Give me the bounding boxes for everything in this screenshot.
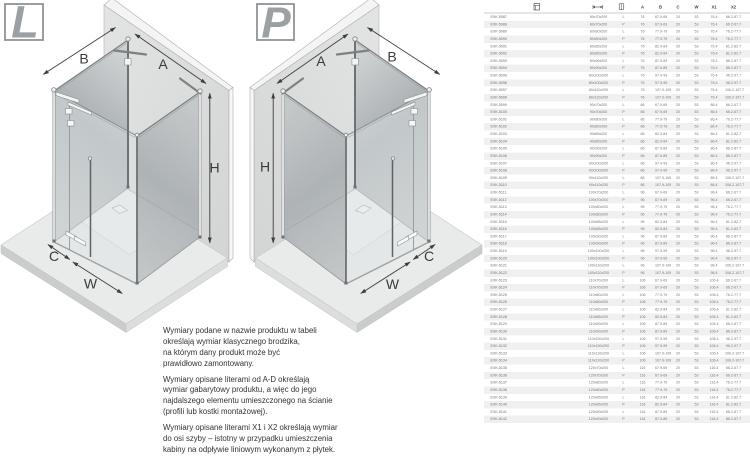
svg-text:H: H bbox=[209, 160, 219, 176]
svg-text:A: A bbox=[158, 56, 168, 72]
svg-text:P: P bbox=[261, 0, 291, 48]
svg-text:B: B bbox=[387, 49, 396, 65]
svg-text:W: W bbox=[84, 276, 98, 292]
svg-text:A: A bbox=[316, 53, 326, 69]
svg-text:C: C bbox=[424, 248, 434, 264]
svg-text:W: W bbox=[386, 276, 400, 292]
svg-text:L: L bbox=[11, 0, 39, 48]
svg-text:H: H bbox=[260, 159, 270, 175]
svg-text:B: B bbox=[79, 51, 88, 67]
svg-text:C: C bbox=[49, 248, 59, 264]
